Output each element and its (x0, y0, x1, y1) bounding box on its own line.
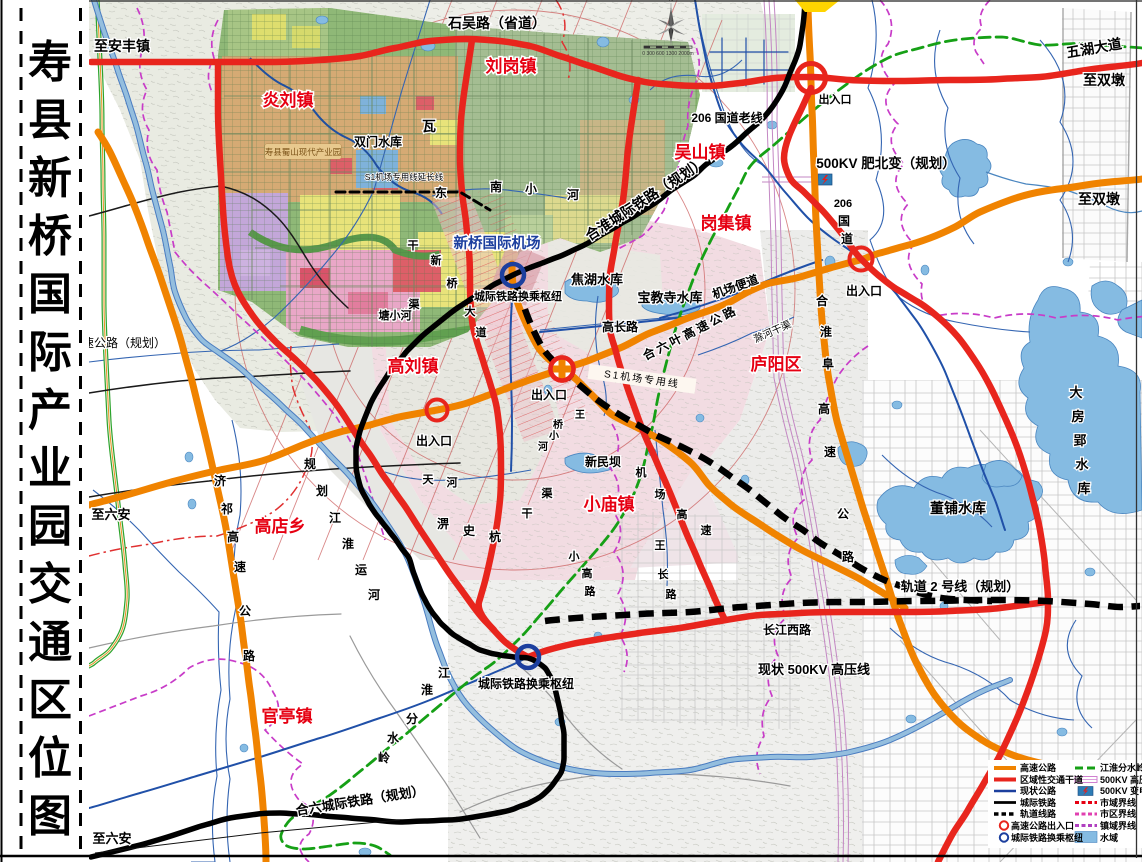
svg-text:500KV 肥北变（规划）: 500KV 肥北变（规划） (816, 155, 956, 171)
svg-text:大: 大 (465, 304, 476, 318)
svg-text:董铺水库: 董铺水库 (930, 500, 986, 516)
svg-text:桥: 桥 (553, 418, 564, 431)
svg-text:郢: 郢 (1073, 433, 1086, 448)
svg-text:河: 河 (538, 441, 548, 453)
svg-text:园: 园 (28, 502, 72, 551)
svg-text:合六城际铁路（规划）: 合六城际铁路（规划） (295, 783, 426, 818)
svg-text:桥: 桥 (447, 276, 459, 290)
svg-text:小: 小 (568, 549, 580, 563)
svg-text:轨道 2 号线（规划）: 轨道 2 号线（规划） (901, 579, 1019, 594)
svg-text:石吴路（省道）: 石吴路（省道） (447, 15, 546, 31)
svg-text:淮: 淮 (820, 324, 832, 339)
svg-text:500KV 变电所: 500KV 变电所 (1100, 785, 1142, 796)
svg-text:淮: 淮 (342, 536, 354, 551)
svg-text:杭: 杭 (489, 529, 501, 544)
svg-text:场: 场 (655, 487, 666, 501)
svg-text:塘小河: 塘小河 (379, 308, 412, 322)
svg-text:寿: 寿 (28, 38, 72, 87)
svg-text:高速公路: 高速公路 (1020, 762, 1057, 773)
svg-text:区: 区 (28, 676, 72, 725)
svg-text:河: 河 (367, 587, 380, 602)
svg-text:江: 江 (329, 510, 341, 525)
svg-text:干: 干 (408, 239, 419, 252)
svg-text:干: 干 (522, 507, 533, 520)
svg-text:瓦: 瓦 (422, 118, 436, 134)
svg-text:0 300 600 1300 2000m: 0 300 600 1300 2000m (642, 51, 693, 57)
svg-text:高店乡: 高店乡 (255, 516, 306, 536)
svg-text:城际铁路: 城际铁路 (1020, 797, 1057, 808)
svg-text:天: 天 (423, 473, 435, 486)
svg-text:速: 速 (701, 523, 712, 537)
svg-text:高刘镇: 高刘镇 (388, 356, 439, 376)
svg-text:岗集镇: 岗集镇 (701, 213, 752, 233)
svg-text:炎刘镇: 炎刘镇 (263, 90, 314, 110)
svg-text:河: 河 (566, 187, 579, 202)
svg-text:合: 合 (816, 293, 829, 308)
svg-text:焦湖水库: 焦湖水库 (570, 272, 623, 287)
svg-text:区域性交通干道: 区域性交通干道 (1020, 774, 1083, 785)
svg-text:路: 路 (666, 587, 678, 601)
svg-text:通: 通 (28, 618, 72, 667)
svg-text:渠: 渠 (542, 486, 554, 500)
svg-text:渠: 渠 (409, 297, 421, 311)
svg-text:淠: 淠 (437, 516, 449, 531)
svg-text:镇域界线: 镇域界线 (1100, 820, 1136, 831)
svg-text:小: 小 (525, 181, 537, 196)
svg-text:王: 王 (655, 539, 666, 552)
svg-text:房: 房 (1071, 409, 1084, 424)
svg-text:高: 高 (227, 529, 239, 544)
svg-text:轨道线路: 轨道线路 (1020, 808, 1057, 819)
svg-text:新: 新 (28, 154, 72, 203)
svg-text:出入口: 出入口 (846, 283, 882, 298)
svg-text:运: 运 (355, 563, 367, 577)
svg-text:路: 路 (585, 584, 597, 598)
svg-text:水域: 水域 (1100, 832, 1118, 843)
svg-text:淮: 淮 (421, 682, 433, 697)
svg-text:S1机场专用线延长线: S1机场专用线延长线 (365, 172, 444, 182)
svg-text:岭: 岭 (378, 750, 390, 765)
svg-text:江淮分水岭: 江淮分水岭 (1100, 762, 1142, 773)
svg-text:宝教寺水库: 宝教寺水库 (637, 290, 702, 305)
svg-text:城际铁路换乘枢纽: 城际铁路换乘枢纽 (478, 676, 574, 691)
svg-text:道: 道 (841, 231, 853, 246)
svg-text:新民坝: 新民坝 (585, 454, 621, 469)
svg-text:市区界线: 市区界线 (1100, 808, 1136, 819)
svg-text:济: 济 (214, 473, 227, 488)
svg-text:库: 库 (1077, 481, 1090, 496)
svg-text:桥: 桥 (28, 212, 72, 261)
svg-text:长: 长 (658, 567, 670, 581)
svg-text:速: 速 (234, 559, 246, 574)
svg-text:速: 速 (824, 444, 836, 459)
svg-text:位: 位 (28, 734, 72, 783)
svg-text:城际铁路换乘枢纽: 城际铁路换乘枢纽 (474, 289, 562, 303)
svg-text:产: 产 (28, 386, 72, 435)
svg-text:城际铁路换乘枢纽: 城际铁路换乘枢纽 (1011, 832, 1083, 843)
svg-text:交: 交 (28, 560, 72, 609)
svg-text:东: 东 (435, 185, 447, 200)
svg-text:公: 公 (239, 604, 251, 618)
svg-text:高速公路出入口: 高速公路出入口 (1011, 820, 1074, 831)
svg-text:出入口: 出入口 (416, 433, 452, 448)
svg-text:双门水库: 双门水库 (354, 134, 402, 149)
svg-text:庐阳区: 庐阳区 (751, 354, 802, 374)
svg-text:市域界线: 市域界线 (1100, 797, 1136, 808)
svg-text:至双墩: 至双墩 (1083, 72, 1126, 88)
svg-text:高: 高 (818, 401, 830, 416)
svg-text:新桥国际机场: 新桥国际机场 (454, 234, 541, 252)
svg-text:水: 水 (1075, 457, 1089, 472)
svg-text:206: 206 (834, 198, 852, 210)
svg-text:江: 江 (438, 665, 450, 680)
svg-text:河: 河 (447, 475, 458, 489)
svg-text:至六安: 至六安 (91, 507, 130, 522)
svg-text:际: 际 (28, 328, 72, 377)
svg-text:路: 路 (243, 648, 256, 663)
svg-text:至安丰镇: 至安丰镇 (94, 38, 150, 54)
svg-text:图: 图 (28, 792, 72, 841)
svg-text:小庙镇: 小庙镇 (584, 494, 635, 514)
svg-text:至双墩: 至双墩 (1078, 191, 1121, 207)
svg-text:出入口: 出入口 (531, 387, 567, 402)
svg-text:国: 国 (28, 270, 72, 319)
svg-text:王: 王 (575, 409, 585, 421)
svg-text:规: 规 (304, 456, 316, 471)
svg-text:新: 新 (431, 253, 442, 267)
svg-text:现状公路: 现状公路 (1020, 785, 1057, 796)
svg-text:阜: 阜 (822, 356, 834, 371)
svg-text:高: 高 (582, 566, 593, 580)
svg-text:道: 道 (476, 325, 487, 339)
svg-text:南: 南 (490, 179, 502, 194)
svg-text:划: 划 (316, 483, 328, 498)
svg-text:刘岗镇: 刘岗镇 (486, 56, 537, 76)
svg-text:史: 史 (463, 523, 476, 538)
svg-text:国: 国 (838, 214, 850, 228)
svg-text:公: 公 (837, 507, 849, 521)
svg-text:速公路（规划）: 速公路（规划） (82, 335, 166, 350)
svg-text:高长路: 高长路 (602, 319, 639, 334)
svg-text:小: 小 (548, 429, 559, 442)
svg-text:206 国道老线: 206 国道老线 (691, 110, 762, 125)
svg-text:路: 路 (842, 549, 855, 564)
svg-text:大: 大 (1069, 385, 1082, 400)
svg-text:高: 高 (677, 507, 688, 521)
svg-text:县: 县 (28, 96, 72, 145)
svg-text:500KV 高压线: 500KV 高压线 (1100, 774, 1142, 785)
svg-text:分: 分 (406, 711, 418, 726)
svg-text:出入口: 出入口 (819, 92, 852, 106)
svg-text:长江西路: 长江西路 (763, 622, 812, 637)
svg-text:至六安: 至六安 (92, 831, 131, 846)
svg-text:祁: 祁 (221, 501, 233, 516)
svg-text:寿县蜀山现代产业园: 寿县蜀山现代产业园 (265, 147, 342, 157)
svg-text:官亭镇: 官亭镇 (262, 706, 313, 726)
svg-text:业: 业 (28, 444, 72, 493)
svg-text:现状 500KV 高压线: 现状 500KV 高压线 (758, 662, 870, 677)
svg-text:机: 机 (636, 465, 647, 479)
svg-text:水: 水 (387, 730, 400, 745)
